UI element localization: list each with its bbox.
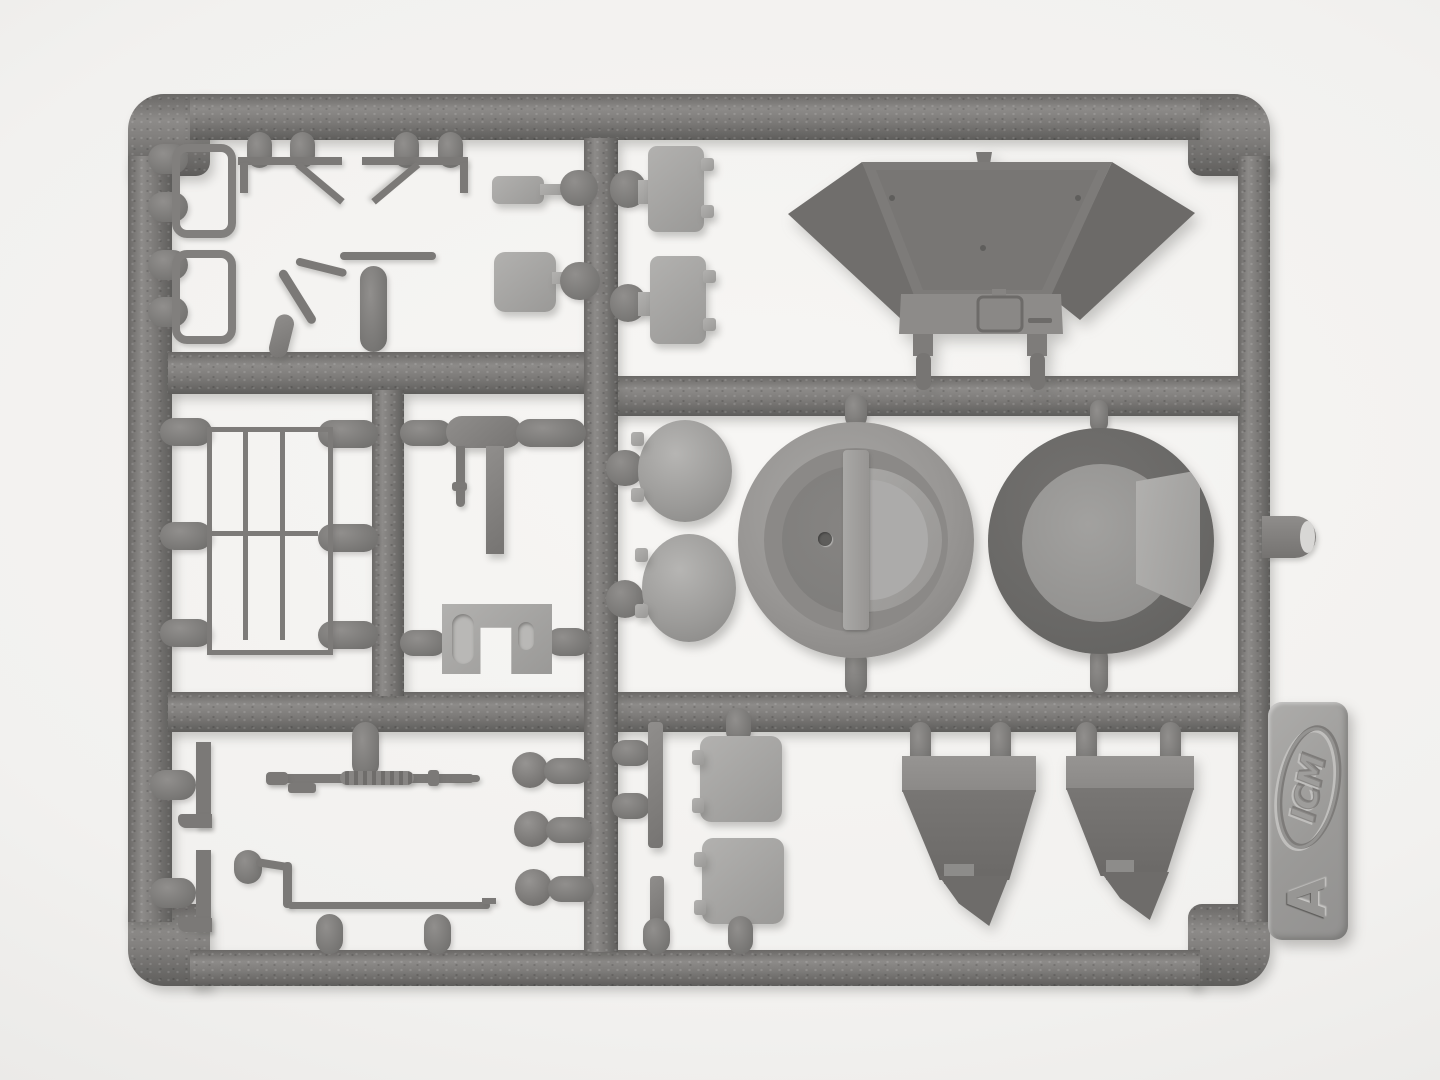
cylinder-hanging-rod (456, 446, 465, 484)
sprue-gate (160, 619, 212, 647)
thin-strip-part (648, 722, 663, 848)
dome-hinge-tab (635, 548, 648, 562)
hatch-hinge-tab (694, 900, 706, 915)
hopper-rivet-dot (1075, 195, 1081, 201)
footstep-bracket-brace (371, 162, 420, 205)
mg-barrel-tip (452, 775, 480, 782)
dome-hatch-part (638, 420, 732, 522)
hatch-hinge-tab (701, 158, 714, 171)
cupola-ring-part (988, 428, 1214, 654)
l-bracket-foot (178, 814, 212, 828)
square-hatch-part (700, 736, 782, 822)
dome-hinge-tab (631, 488, 644, 502)
grab-handle-part (172, 250, 236, 344)
hopper-slot-detail (1028, 318, 1052, 323)
hatch-ring-part (738, 422, 974, 658)
hatch-hinge-tab (694, 852, 706, 867)
sprue-gate (643, 918, 670, 954)
mg-barrel-collar (428, 770, 439, 786)
icm-brand-logo-embossed: ICM ICM ICM (1268, 710, 1348, 870)
hatch-panel-part (650, 256, 706, 344)
sprue-gate (316, 914, 343, 954)
cylinder-flat-bar (486, 446, 504, 554)
bracket-slot-hole (518, 622, 534, 650)
bent-rod-part-horizontal (340, 252, 436, 260)
hatch-hinge-tab (703, 318, 716, 331)
sprue-gate (400, 630, 446, 656)
hopper-rivet-dot (980, 245, 986, 251)
grille-vertical-bar (243, 432, 248, 640)
grille-horizontal-bar (212, 531, 318, 536)
dome-hatch-part (642, 534, 736, 642)
sprue-gate (150, 770, 196, 800)
sprue-gate (560, 262, 600, 300)
sprue-gate (160, 522, 212, 550)
sprue-gate (160, 418, 212, 446)
photo-of-model-kit-sprue: ICM ICM ICM A (0, 0, 1440, 1080)
sprue-gate (352, 722, 379, 778)
dome-hinge-tab (635, 604, 648, 618)
cylinder-part (446, 416, 522, 448)
mg-barrel-muzzle-step (266, 772, 288, 785)
hatch-hinge-tab (692, 798, 704, 813)
bent-rod-part-elbow (295, 257, 347, 277)
hatch-pin-hole (818, 532, 832, 546)
sprue-letter-label: A (1268, 862, 1348, 934)
bracket-slot-hole (452, 614, 474, 664)
disc-lamp-part (514, 811, 550, 847)
sprue-gate (516, 419, 586, 447)
handrail-end-tab (482, 898, 496, 904)
splash-guard-part (1066, 756, 1194, 922)
sprue-letter-text: A (1278, 878, 1338, 918)
l-bracket-foot (178, 918, 212, 932)
splash-guard-part (902, 756, 1036, 926)
hatch-hinge-tab (692, 750, 704, 765)
splash-guard-beak (1098, 872, 1172, 920)
hopper-leg (913, 334, 933, 356)
footstep-bracket-brace (296, 162, 345, 205)
hopper-leg (1027, 334, 1047, 356)
splash-guard-top-band (902, 756, 1036, 792)
square-hatch-part (702, 838, 784, 924)
sprue-gate (234, 850, 262, 884)
hopper-hatch-square (978, 297, 1022, 331)
sprue-gate (546, 628, 590, 656)
hatch-panel-part (648, 146, 704, 232)
sprue-gate (1090, 648, 1108, 694)
sprue-gate (728, 916, 753, 954)
mg-barrel-lug (288, 783, 316, 793)
sprue-gate (612, 793, 650, 819)
sprue-gate (560, 170, 598, 206)
divider-horizontal-upper-left (168, 352, 588, 394)
grille-vertical-bar (280, 432, 285, 640)
hopper-hull-part (780, 148, 1212, 398)
sprue-gate-thick (360, 266, 387, 352)
sprue-gate (544, 758, 590, 784)
grille-panel-part (207, 427, 333, 655)
splash-guard-beak (936, 876, 1012, 926)
footstep-bracket-foot (460, 163, 468, 193)
disc-lamp-part (515, 869, 552, 906)
dome-hinge-tab (631, 432, 644, 446)
sprue-gate (424, 914, 451, 954)
paddle-plate-square (494, 252, 556, 312)
sprue-gate (150, 878, 196, 908)
hopper-leg-stub (916, 353, 931, 390)
hatch-hinge-bar (843, 450, 869, 630)
splash-guard-top-band (1066, 756, 1194, 790)
mg-barrel-ribbed-jacket (340, 771, 414, 785)
grab-handle-part (172, 144, 236, 238)
sprue-frame-rail-top (190, 94, 1200, 140)
sprue-gate (400, 420, 452, 446)
sprue-gate (548, 876, 594, 902)
hatch-hinge-tab (703, 270, 716, 283)
sprue-gate (612, 740, 650, 766)
cylinder-rod-tip (456, 489, 465, 507)
hopper-leg-stub (1030, 353, 1045, 390)
sprue-frame-rail-bottom (190, 950, 1200, 986)
footstep-bracket-part (238, 157, 342, 165)
footstep-bracket-foot (240, 163, 248, 193)
disc-lamp-part (512, 752, 548, 788)
sprue-gate (546, 817, 592, 843)
sprue-label-tab: ICM ICM ICM A (1268, 702, 1348, 940)
hatch-hinge-tab (701, 205, 714, 218)
paddle-plate-small (492, 176, 544, 204)
cut-runner-stub-face (1300, 521, 1315, 553)
hopper-rivet-dot (889, 195, 895, 201)
handrail-run (288, 902, 490, 909)
